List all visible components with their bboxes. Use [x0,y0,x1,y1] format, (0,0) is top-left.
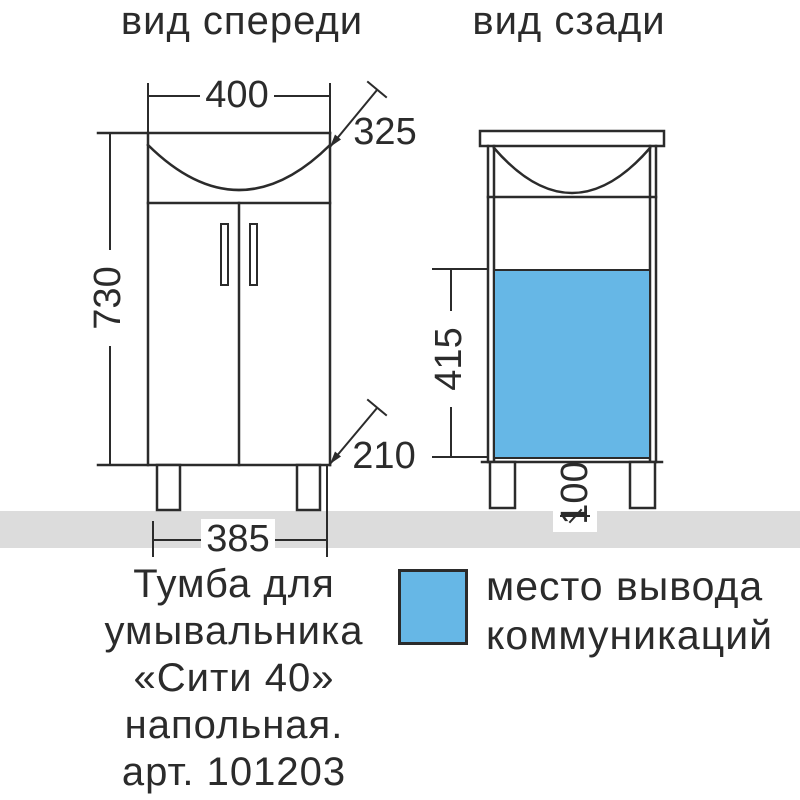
back-sink-curve [494,148,650,193]
dimension-label-325: 325 [348,113,422,151]
front-right-leg [297,465,320,510]
front-left-leg [157,465,180,510]
legend-label-line-2: коммуникаций [486,611,773,660]
dimension-label-415: 415 [428,311,470,407]
front-sink-curve [148,145,330,190]
caption-line-4: напольная. [36,702,432,749]
back-countertop [480,131,664,146]
dimension-label-400: 400 [200,76,274,114]
product-dimension-diagram: вид спереди вид сзади 400 325 730 210 38… [0,0,800,800]
back-view-title: вид сзади [444,0,694,42]
front-view-dimension-lines [110,82,386,556]
dim-325-tick [368,82,386,97]
front-view-drawing [98,133,330,510]
legend-blue-swatch [398,569,468,645]
floor-strip [0,511,800,548]
back-left-leg [490,462,515,508]
legend-label: место вывода коммуникаций [486,562,773,660]
dim-210-tick [368,400,386,415]
dimension-label-730: 730 [87,250,129,346]
left-door-handle [221,224,228,285]
caption-line-5: арт. 101203 [36,749,432,796]
dimension-label-100: 100 [555,453,595,533]
caption-line-3: «Сити 40» [36,655,432,702]
front-view-title: вид спереди [92,0,392,42]
product-caption: Тумба для умывальника «Сити 40» напольна… [36,561,432,796]
caption-line-2: умывальника [36,608,432,655]
communications-zone [494,270,650,458]
legend-label-line-1: место вывода [486,562,773,611]
dimension-label-210: 210 [347,437,421,475]
caption-line-1: Тумба для [36,561,432,608]
back-right-leg [630,462,655,508]
back-view-drawing [480,131,664,508]
right-door-handle [250,224,257,285]
dimension-label-385: 385 [201,519,275,559]
